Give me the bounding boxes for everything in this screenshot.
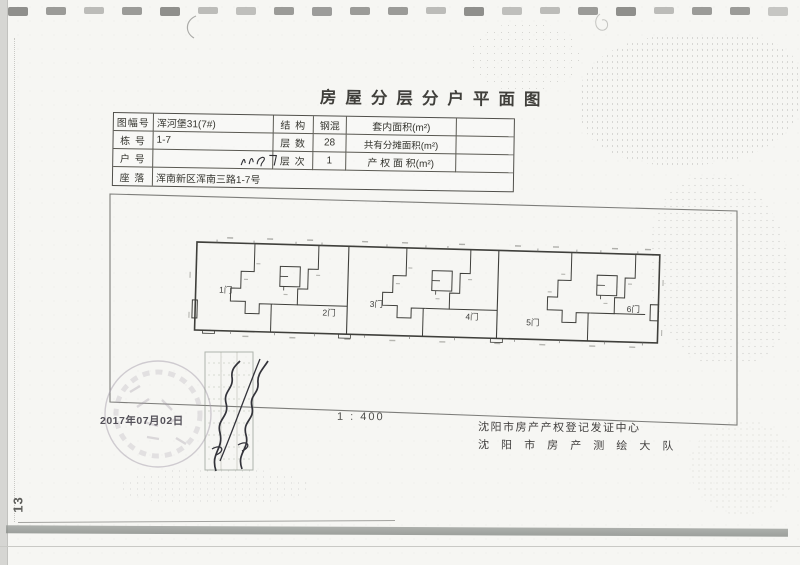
unit-label-6: 6门 — [627, 304, 641, 314]
unit-label-4: 4门 — [465, 312, 479, 322]
unit-label-1: 1门 — [219, 285, 233, 295]
scan-bottom-line — [0, 546, 800, 547]
label-shared-area: 共有分摊面积(m²) — [346, 135, 456, 155]
certificate-strip-and-signatures — [202, 349, 274, 477]
label-address: 座 落 — [113, 167, 153, 186]
scan-left-edge — [0, 0, 8, 565]
value-shared-area — [456, 136, 513, 155]
value-ownership-area — [456, 154, 513, 173]
stamp-date: 2017年07月02日 — [100, 413, 184, 428]
unit-label-5: 5门 — [526, 317, 540, 327]
page-number-rule — [18, 520, 395, 523]
property-info-table: 图幅号 浑河堡31(7#) 结 构 钢混 套内面积(m²) 栋 号 1-7 层 … — [112, 112, 515, 192]
plan-scale: 1 : 400 — [337, 411, 385, 423]
label-ownership-area: 产 权 面 积(m²) — [346, 153, 456, 173]
label-building-no: 栋 号 — [113, 131, 153, 150]
registration-center-name: 沈阳市房产产权登记发证中心 — [478, 418, 641, 435]
label-structure: 结 构 — [274, 116, 314, 135]
label-map-sheet: 图幅号 — [114, 113, 154, 132]
handwritten-unit-number — [236, 151, 273, 168]
scan-fold-line — [14, 38, 15, 522]
value-inner-area — [457, 118, 514, 137]
unit-label-3: 3门 — [370, 299, 384, 309]
page-number: 13 — [11, 496, 26, 512]
unit-label-2: 2门 — [322, 308, 336, 318]
value-structure: 钢混 — [314, 116, 347, 135]
value-level: 1 — [313, 152, 346, 171]
label-floors: 层 数 — [273, 134, 313, 153]
value-map-sheet: 浑河堡31(7#) — [154, 114, 274, 134]
scanned-floor-plan-document: 房屋分层分户平面图 图幅号 浑河堡31(7#) 结 构 钢混 套内面积(m²) … — [0, 0, 800, 565]
surveying-brigade-name: 沈 阳 市 房 产 测 绘 大 队 — [478, 436, 678, 453]
label-unit-no: 户 号 — [113, 149, 153, 168]
value-floors: 28 — [313, 134, 346, 153]
pen-curl-artifacts — [0, 0, 800, 70]
page-title: 房屋分层分户平面图 — [320, 84, 550, 110]
value-unit-no — [153, 150, 273, 170]
scan-bottom-shadow — [6, 525, 788, 536]
building-outline: 1门 2门 3门 4门 5门 6门 — [188, 237, 664, 348]
signature-scribble — [240, 361, 268, 469]
value-building-no: 1-7 — [153, 132, 273, 152]
label-inner-area: 套内面积(m²) — [347, 117, 457, 137]
